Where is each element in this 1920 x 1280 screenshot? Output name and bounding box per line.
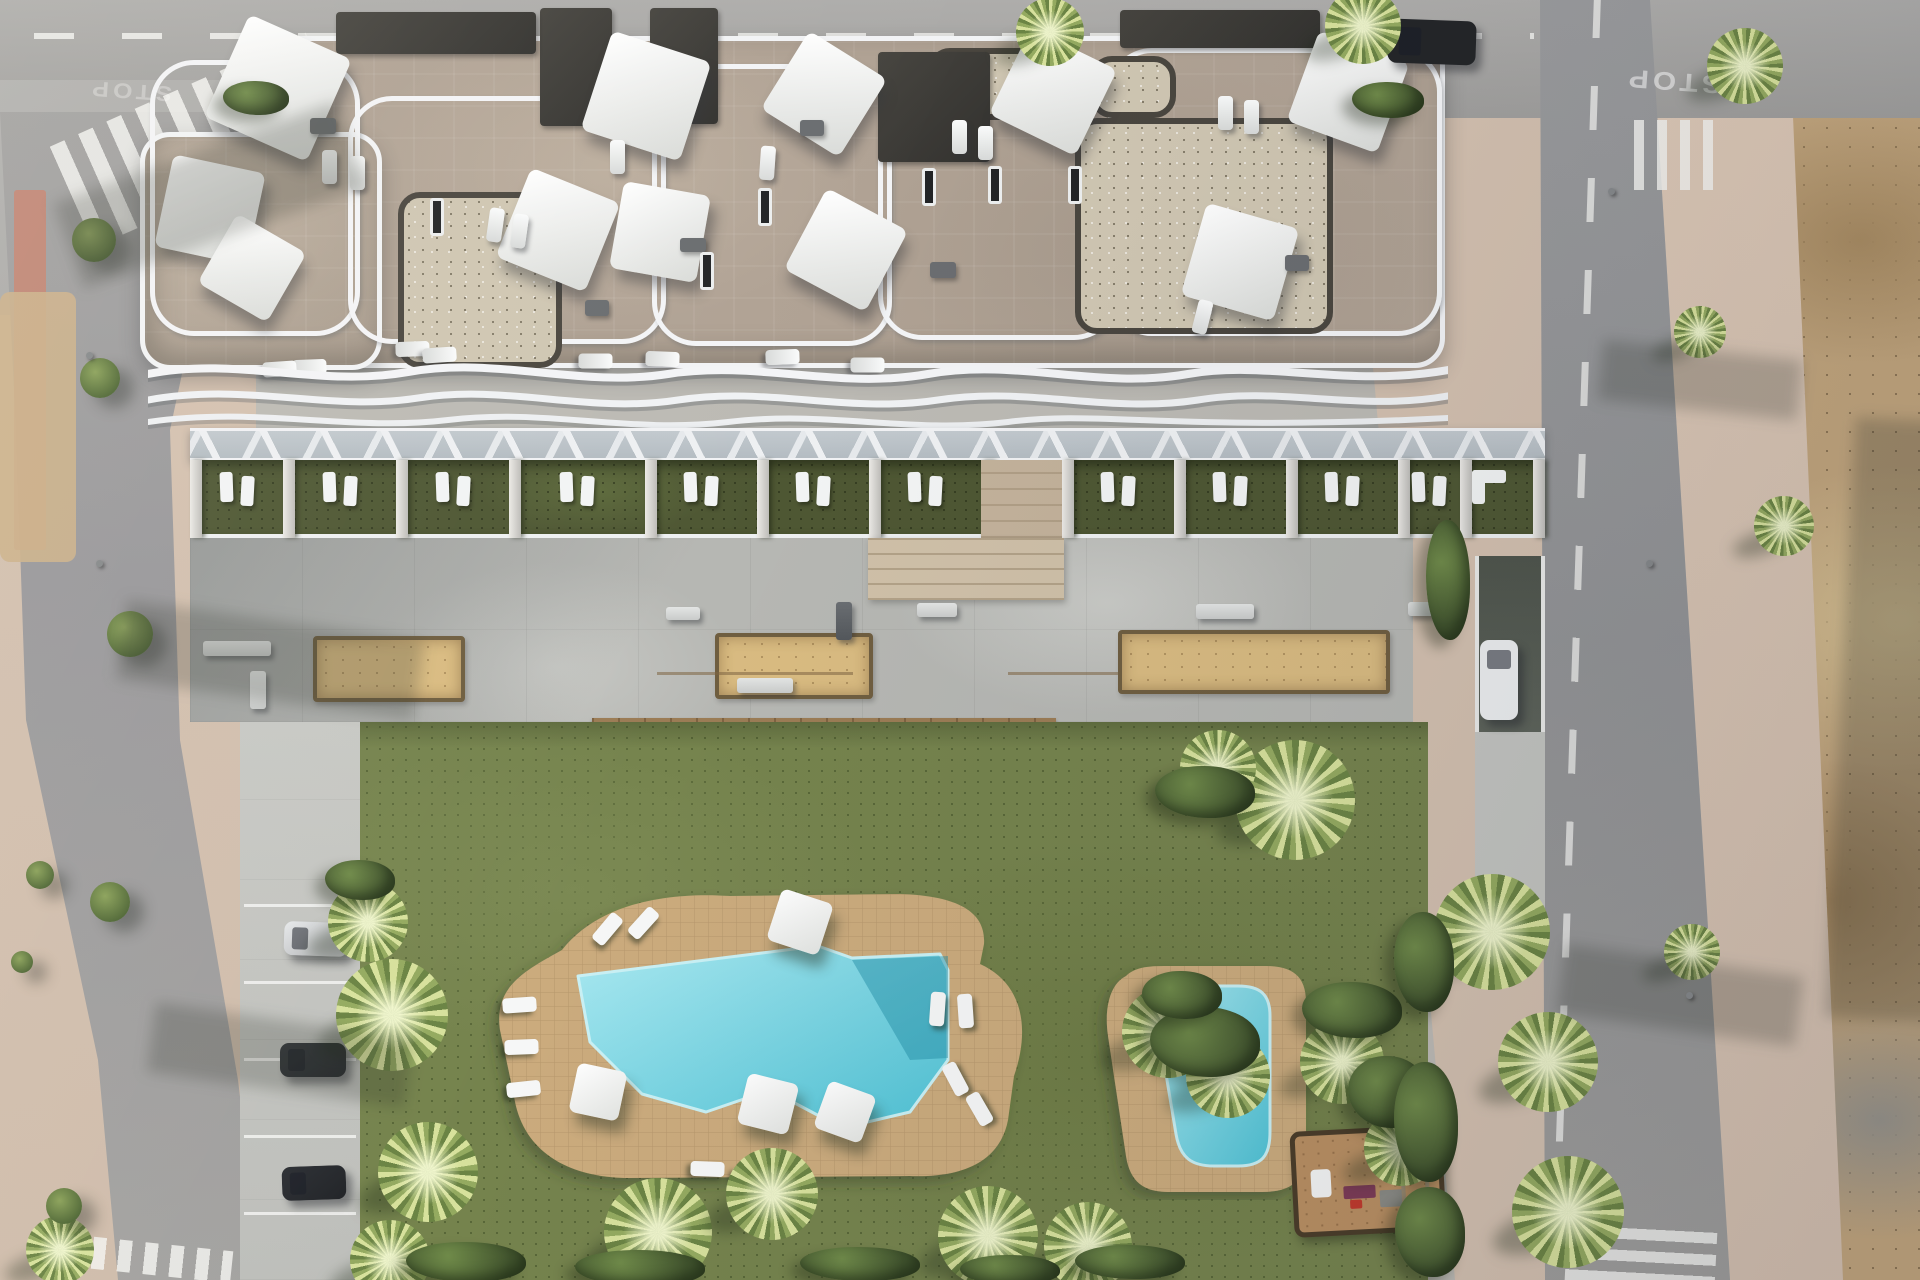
dark-roof-core [336,12,536,54]
roof-lounger [610,140,625,174]
outdoor-furniture [680,238,706,252]
pool-umbrella [568,1062,627,1121]
terrace-lounger [1411,472,1425,502]
parked-car [281,1165,346,1201]
bush [1394,1062,1458,1182]
aerial-render-canvas: STOP STOP [0,0,1920,1280]
shade-sail [609,181,711,283]
outdoor-furniture [585,300,609,316]
bush [1426,520,1470,640]
car-entering-garage [1480,640,1518,720]
terrace-sofa [1472,470,1485,504]
bush [1395,1187,1465,1277]
roof-lounger [978,126,993,160]
terrace-lounger [907,472,921,502]
terrace-lounger [435,472,449,502]
skylight [758,188,772,226]
dark-roof-core [878,52,990,162]
street-tree [26,861,54,889]
bush [1394,912,1454,1012]
terrace-wall [283,460,295,538]
terrace-lounger [704,476,719,507]
play-table [1310,1169,1331,1198]
terrace-lounger [456,476,471,507]
bush [325,860,395,900]
roof-lounger [952,120,967,154]
terrace-lounger [1212,472,1226,502]
street-tree [90,882,130,922]
terrace-lounger [322,472,336,502]
pool-lounger [502,996,537,1013]
street-lamp [86,352,93,359]
terrace-wall [1460,460,1472,538]
bush [960,1255,1060,1280]
terrace-wall [1398,460,1410,538]
street-lamp [1608,188,1615,195]
outdoor-furniture [930,262,956,278]
terrace-lounger [928,476,943,507]
pool-lounger [929,992,946,1027]
pergola-louvers [190,428,1545,460]
terrace-lounger [1233,476,1248,507]
plaza-bench [1196,604,1254,619]
bush [1352,82,1424,118]
roof-lounger [1218,96,1233,130]
parking-bay-line [244,1212,356,1215]
pool-lounger [690,1161,725,1177]
plaza-bench [836,602,852,640]
parking-bay-line [244,1135,356,1138]
play-blocks [1343,1185,1376,1200]
terrace-wall [509,460,521,538]
skylight [988,166,1002,204]
plaza-bench [917,603,957,617]
skylight [922,168,936,206]
street-lamp [1686,992,1693,999]
terrace-lounger [219,472,233,502]
terrace-wall [757,460,769,538]
pool-lounger [504,1039,539,1055]
street-tree [11,951,33,973]
skylight [700,252,714,290]
terrace-lounger [559,472,573,502]
bush [223,81,289,115]
play-spring-toy [1350,1199,1362,1209]
terrace-lounger [795,472,809,502]
roof-lounger [759,146,776,181]
boule-line [1008,672,1118,675]
roof-lounger [1244,100,1259,134]
plaza-bench [666,607,700,620]
terrace-lounger [1432,476,1447,507]
petanque-court [1118,630,1390,694]
terrace-wall [1062,460,1074,538]
parking-bay-line [244,981,356,984]
terrace-lounger [1100,472,1114,502]
outdoor-furniture [1285,255,1309,271]
terrace-wall [396,460,408,538]
skylight [430,198,444,236]
terrace-wall [1286,460,1298,538]
ground-floor-terraces [190,460,1545,538]
terrace-lounger [343,476,358,507]
street-lamp [1646,560,1653,567]
outdoor-furniture [800,120,824,136]
pool-lounger [957,994,974,1029]
street-lamp [96,560,103,567]
terrace-lounger [1324,472,1338,502]
entrance-walkway [981,460,1062,538]
bush [800,1247,920,1280]
plaza-bench [737,678,793,693]
entrance-landing-steps [868,538,1064,600]
skylight [1068,166,1082,204]
street-tree [46,1188,82,1224]
terrace-lounger [816,476,831,507]
terrace-wall [869,460,881,538]
terrace-lounger [240,476,255,507]
dark-roof-core [1120,10,1320,48]
terrace-lounger [580,476,595,507]
left-dirt-patch [0,292,76,562]
boule-line [657,672,853,675]
terrace-lounger [683,472,697,502]
terrace-wall [1174,460,1186,538]
bush [575,1250,705,1280]
terrace-wall [645,460,657,538]
crosswalk-top_right [1634,120,1718,190]
terrace-lounger [1345,476,1360,507]
terrace-lounger [1121,476,1136,507]
balcony-ribbon [148,348,1448,432]
bush [406,1242,526,1280]
terrace-wall [190,460,202,538]
street-tree [80,358,120,398]
terrace-wall [1533,460,1545,538]
